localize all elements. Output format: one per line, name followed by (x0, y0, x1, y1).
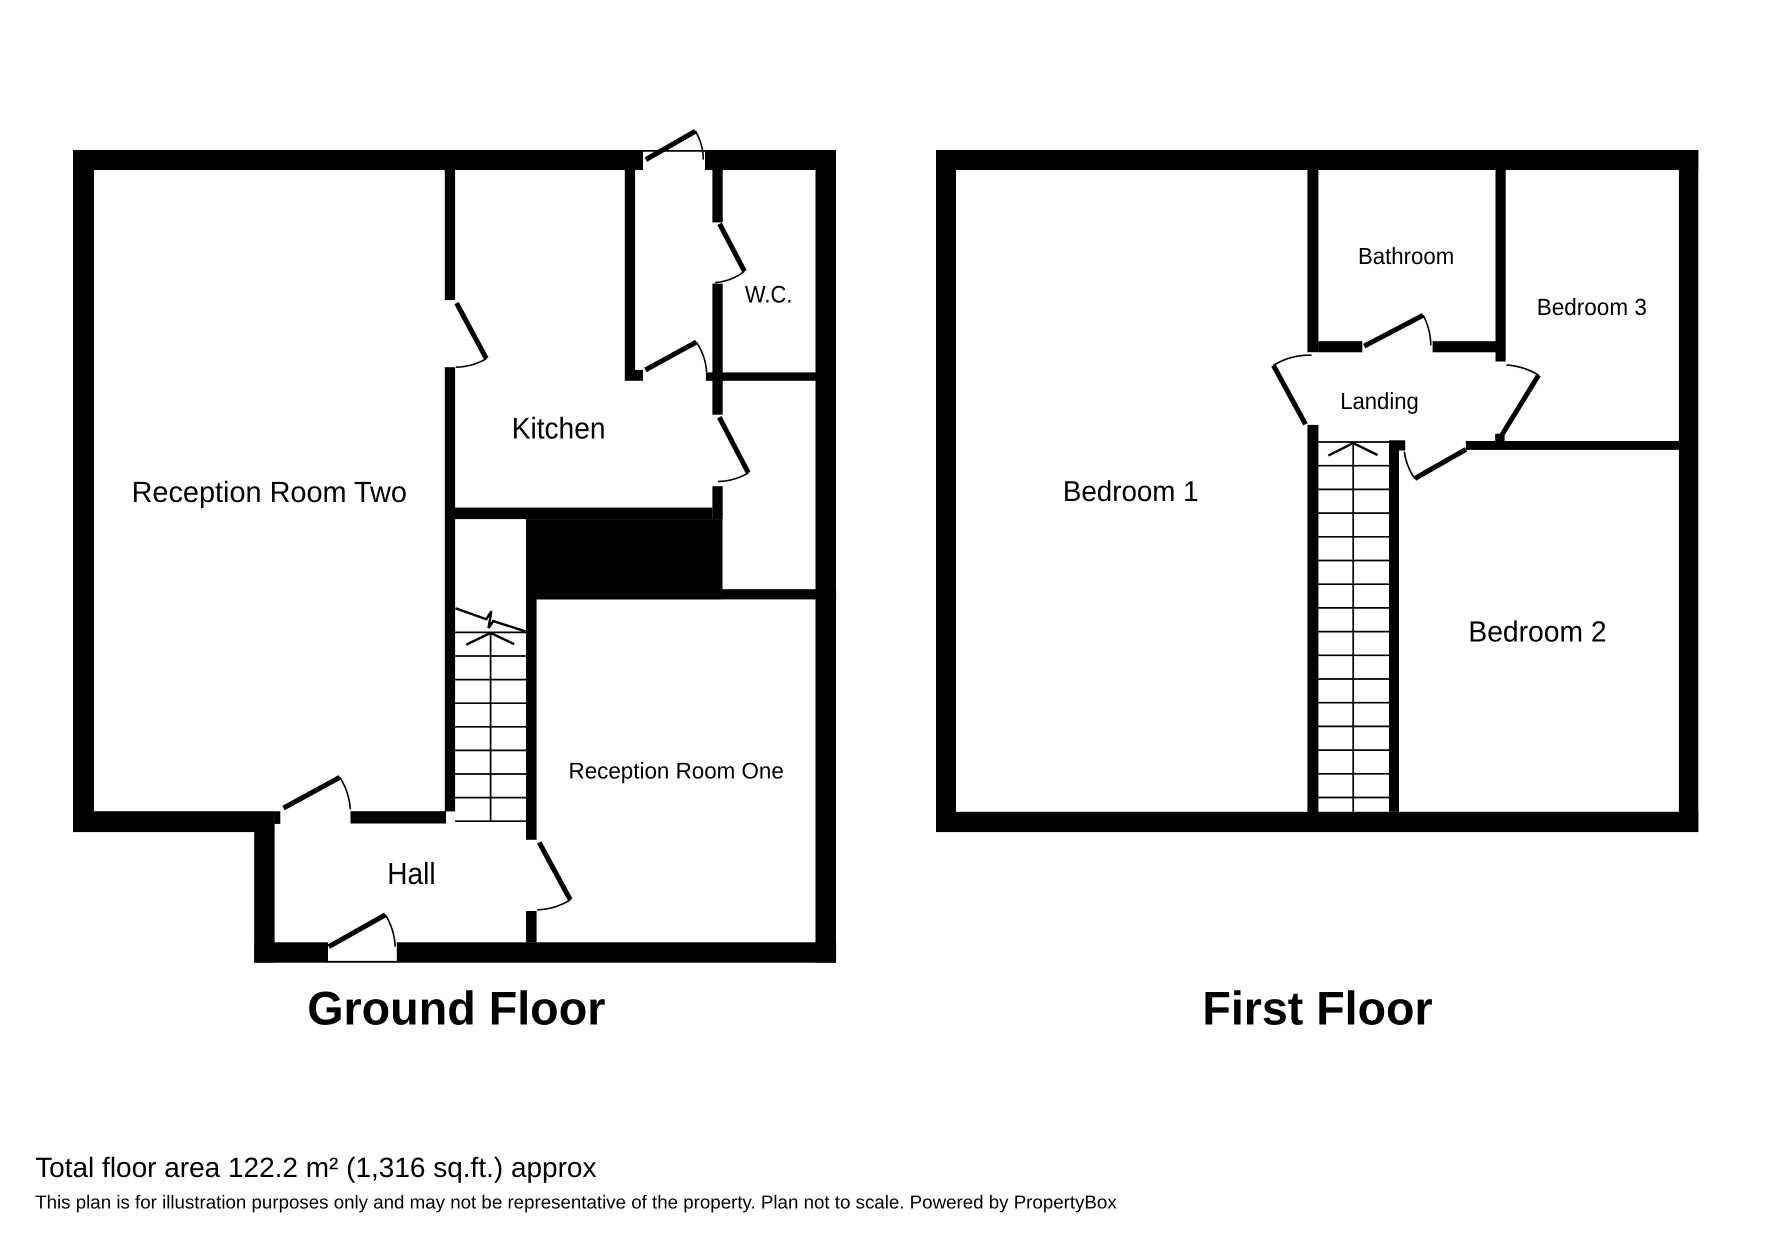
svg-text:Ground Floor: Ground Floor (307, 983, 605, 1036)
svg-text:Landing: Landing (1340, 388, 1419, 414)
svg-text:Bedroom 2: Bedroom 2 (1468, 617, 1606, 649)
svg-text:Bedroom 3: Bedroom 3 (1537, 294, 1647, 320)
svg-text:Bedroom 1: Bedroom 1 (1063, 476, 1199, 508)
svg-text:First Floor: First Floor (1202, 983, 1432, 1036)
svg-text:Reception Room One: Reception Room One (569, 758, 784, 784)
svg-text:Total floor area 122.2 m² (1,3: Total floor area 122.2 m² (1,316 sq.ft.)… (35, 1152, 596, 1183)
svg-text:W.C.: W.C. (745, 281, 793, 308)
svg-text:Hall: Hall (387, 857, 435, 891)
svg-text:This plan is for illustration: This plan is for illustration purposes o… (35, 1192, 1117, 1213)
svg-text:Bathroom: Bathroom (1358, 243, 1454, 269)
svg-text:Kitchen: Kitchen (512, 412, 606, 445)
svg-text:Reception Room Two: Reception Room Two (132, 476, 407, 509)
